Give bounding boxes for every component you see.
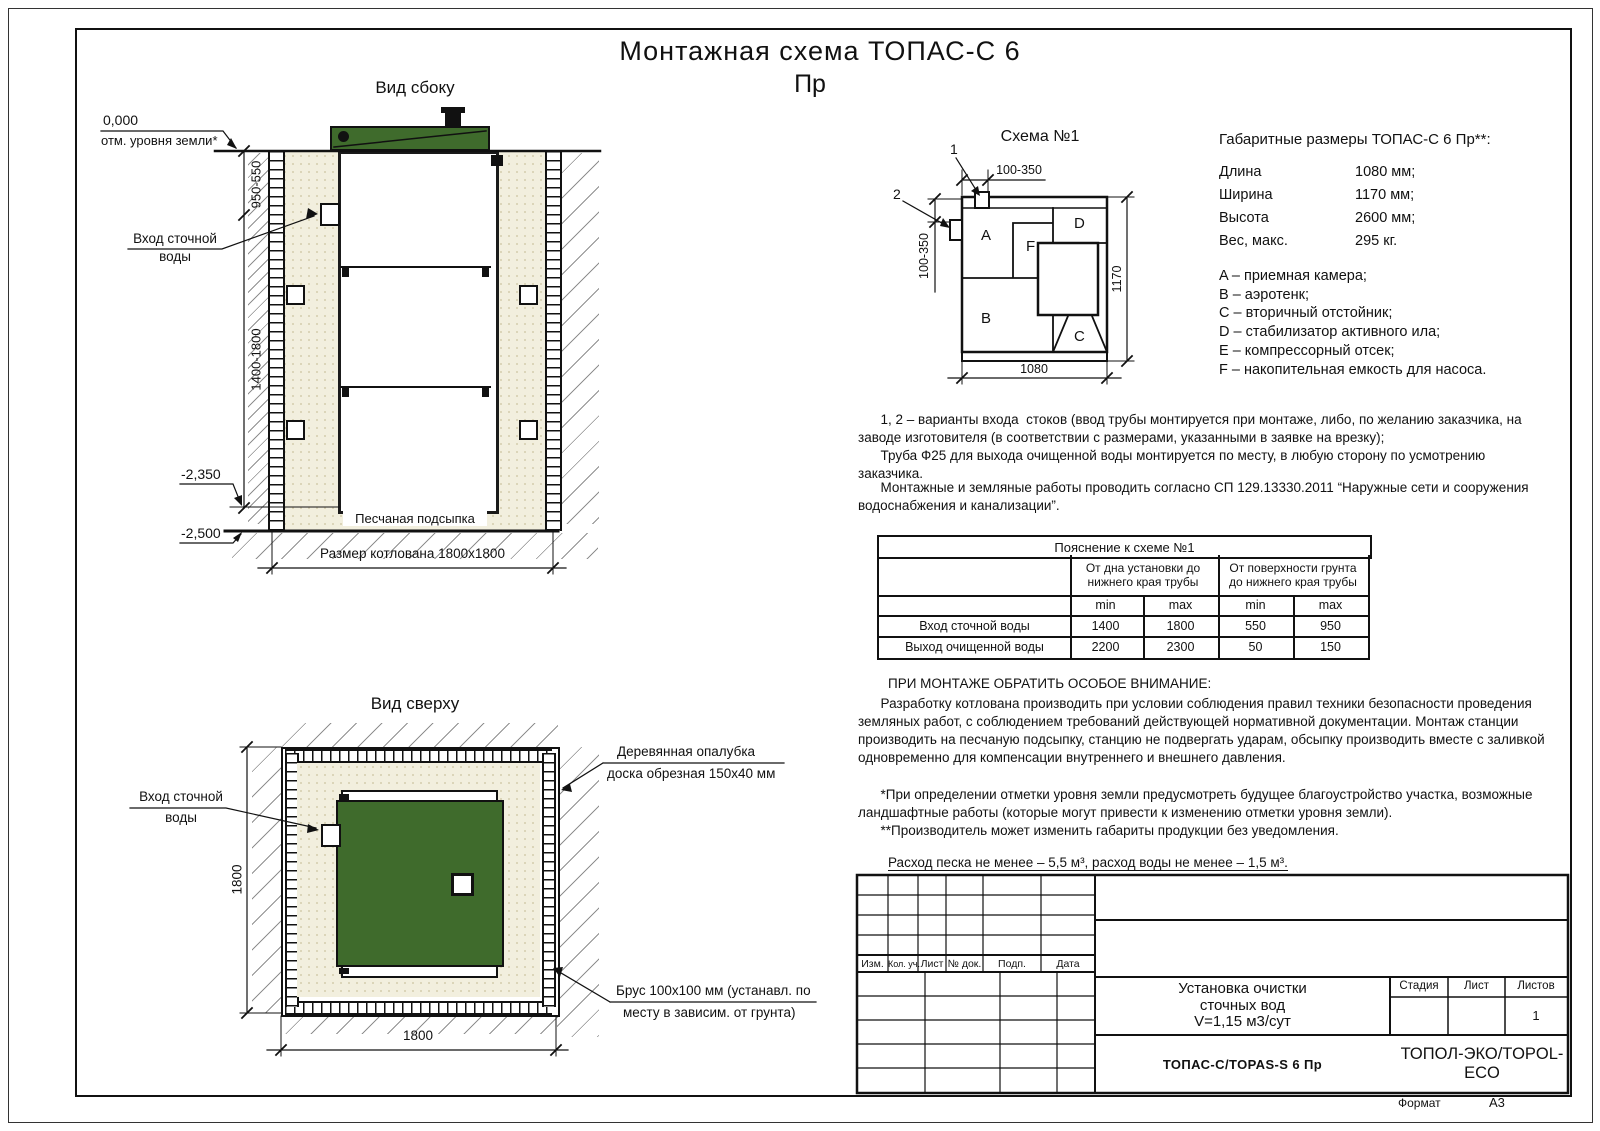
footnotes: *При определении отметки уровня земли пр… xyxy=(858,786,1553,840)
clamp-mark xyxy=(482,268,489,277)
table-max2: max xyxy=(1293,595,1370,617)
formwork-label-1: Деревянная опалубка xyxy=(617,744,755,759)
sheets-value: 1 xyxy=(1505,1008,1567,1023)
tank-lid-top xyxy=(336,800,504,967)
dim-1400-1800: 1400-1800 xyxy=(249,320,264,400)
specs-rows: Длина1080 мм; Ширина1170 мм; Высота2600 … xyxy=(1219,164,1415,256)
clamp-mark xyxy=(342,388,349,397)
stage-label: Стадия xyxy=(1390,980,1448,992)
top-hatch-right xyxy=(557,747,599,1037)
formwork-plank-top xyxy=(285,749,552,763)
spec-label: Вес, макс. xyxy=(1219,233,1355,256)
vent-hatch-top xyxy=(451,873,474,896)
clamp-mark xyxy=(339,794,349,800)
beam-label-2: месту в зависим. от грунта) xyxy=(623,1005,795,1020)
formwork-plank-bottom xyxy=(285,1001,552,1015)
sheet-label: Лист xyxy=(1448,980,1505,992)
compartment-F: F xyxy=(1026,238,1035,255)
compartment-B: B xyxy=(981,310,991,327)
wall-bracket xyxy=(286,420,305,440)
compartment-legend: A – приемная камера; B – аэротенк; C – в… xyxy=(1219,267,1486,379)
level-2500: -2,500 xyxy=(181,525,221,541)
formwork-right xyxy=(545,151,562,531)
wall-bracket xyxy=(519,285,538,305)
compartment-A: A xyxy=(981,227,991,244)
schema-dim-top: 100-350 xyxy=(988,163,1050,177)
drawing-sheet: Монтажная схема ТОПАС-С 6 Пр Вид сбоку П… xyxy=(0,0,1600,1131)
sheets-label: Листов xyxy=(1505,980,1567,992)
formwork-plank-right xyxy=(542,753,556,1007)
table-cell: 150 xyxy=(1293,636,1370,660)
compartment-C: C xyxy=(1074,328,1085,345)
table-group2: От поверхности грунта до нижнего края тр… xyxy=(1218,555,1370,597)
tank-lid xyxy=(330,126,490,151)
clamp-mark xyxy=(482,388,489,397)
inlet-label-top-1: Вход сточной xyxy=(133,789,229,804)
compartment-E: E xyxy=(1062,267,1072,284)
page-subtitle: Пр xyxy=(560,70,1060,99)
tank-body-side xyxy=(338,151,499,514)
doc-title: Установка очистки сточных вод V=1,15 м3/… xyxy=(1095,981,1390,1031)
spec-label: Ширина xyxy=(1219,187,1355,210)
lid-bolt xyxy=(338,131,349,142)
beam-label-1: Брус 100x100 мм (устанавл. по xyxy=(616,983,811,998)
schema-marker-2: 2 xyxy=(893,186,901,202)
top-view-title: Вид сверху xyxy=(355,694,475,714)
sand-bed-label: Песчаная подсыпка xyxy=(343,511,487,526)
inlet-pipe-side xyxy=(320,203,340,226)
table-row-label: Выход очищенной воды xyxy=(877,636,1072,660)
table-cell: 1800 xyxy=(1143,615,1220,638)
table-corner-cell xyxy=(877,555,1072,597)
attention-title: ПРИ МОНТАЖЕ ОБРАТИТЬ ОСОБОЕ ВНИМАНИЕ: xyxy=(888,676,1211,691)
inlet-pipe-top xyxy=(321,824,341,847)
spec-value: 1080 мм; xyxy=(1355,164,1415,187)
spec-label: Длина xyxy=(1219,164,1355,187)
table-blank xyxy=(877,595,1072,617)
rev-header-podp: Подп. xyxy=(983,958,1041,970)
level-2350: -2,350 xyxy=(181,466,221,482)
table-max1: max xyxy=(1143,595,1220,617)
page-title: Монтажная схема ТОПАС-С 6 xyxy=(570,36,1070,67)
table-min1: min xyxy=(1068,595,1145,617)
top-hatch-top xyxy=(281,723,558,747)
formwork-label-2: доска обрезная 150x40 мм xyxy=(607,766,775,781)
level-zero-value: 0,000 xyxy=(103,112,138,128)
mounting-note: Монтажные и земляные работы проводить со… xyxy=(858,479,1550,515)
dim-1800-vertical: 1800 xyxy=(230,850,245,910)
schema-marker-1: 1 xyxy=(950,141,958,157)
inlet-label-top-2: воды xyxy=(133,810,229,825)
table-row-label: Вход сточной воды xyxy=(877,615,1072,638)
table-cell: 1400 xyxy=(1068,615,1145,638)
rev-header-data: Дата xyxy=(1041,958,1095,970)
attention-body: Разработку котлована производить при усл… xyxy=(858,695,1553,767)
clamp-mark xyxy=(342,268,349,277)
table-cell: 950 xyxy=(1293,615,1370,638)
spec-value: 2600 мм; xyxy=(1355,210,1415,233)
schema-dim-right: 1170 xyxy=(1110,254,1124,304)
schema-dim-left: 100-350 xyxy=(917,225,931,287)
format-label: Формат xyxy=(1398,1096,1441,1110)
wall-bracket xyxy=(286,285,305,305)
consumption-note: Расход песка не менее – 5,5 м³, расход в… xyxy=(888,855,1288,871)
rev-header-list: Лист xyxy=(918,958,946,970)
level-zero-label: отм. уровня земли* xyxy=(101,133,218,148)
inlet-label-side-1: Вход сточной xyxy=(127,231,223,246)
formwork-left xyxy=(268,151,285,531)
dim-950-550: 950-550 xyxy=(249,155,264,215)
table-min2: min xyxy=(1218,595,1295,617)
table-cell: 2200 xyxy=(1068,636,1145,660)
spec-label: Высота xyxy=(1219,210,1355,233)
specs-title: Габаритные размеры ТОПАС-С 6 Пр**: xyxy=(1219,131,1491,148)
vent-chimney-cap xyxy=(441,107,465,113)
table-group1: От дна установки до нижнего края трубы xyxy=(1068,555,1220,597)
rev-header-koluch: Кол. уч. xyxy=(888,959,918,969)
dim-1800-horizontal: 1800 xyxy=(368,1028,468,1043)
inlet-label-side-2: воды xyxy=(127,249,223,264)
outlet-pipe-side xyxy=(491,155,503,166)
company-name: ТОПОЛ-ЭКО/TOPOL-ECO xyxy=(1390,1035,1568,1093)
wall-bracket xyxy=(519,420,538,440)
schema-dim-bottom: 1080 xyxy=(1004,362,1064,376)
model-designation: ТОПАС-С/TOPAS-S 6 Пр xyxy=(1095,1035,1390,1093)
schema-title: Схема №1 xyxy=(975,128,1105,146)
spec-value: 1170 мм; xyxy=(1355,187,1414,210)
table-cell: 50 xyxy=(1218,636,1295,660)
table-cell: 2300 xyxy=(1143,636,1220,660)
table-cell: 550 xyxy=(1218,615,1295,638)
inlet-note: 1, 2 – варианты входа стоков (ввод трубы… xyxy=(858,411,1550,483)
vent-chimney xyxy=(445,112,461,127)
pit-size-dim: Размер котлована 1800x1800 xyxy=(290,546,535,561)
rev-header-ndok: № док. xyxy=(946,958,983,970)
top-hatch-left xyxy=(252,747,281,1013)
compartment-D: D xyxy=(1074,215,1085,232)
side-view-title: Вид сбоку xyxy=(355,78,475,98)
spec-value: 295 кг. xyxy=(1355,233,1397,256)
rev-header-izm: Изм. xyxy=(857,958,888,970)
format-value: А3 xyxy=(1489,1095,1505,1110)
ground-hatch-right xyxy=(557,153,599,524)
clamp-mark xyxy=(339,968,349,974)
